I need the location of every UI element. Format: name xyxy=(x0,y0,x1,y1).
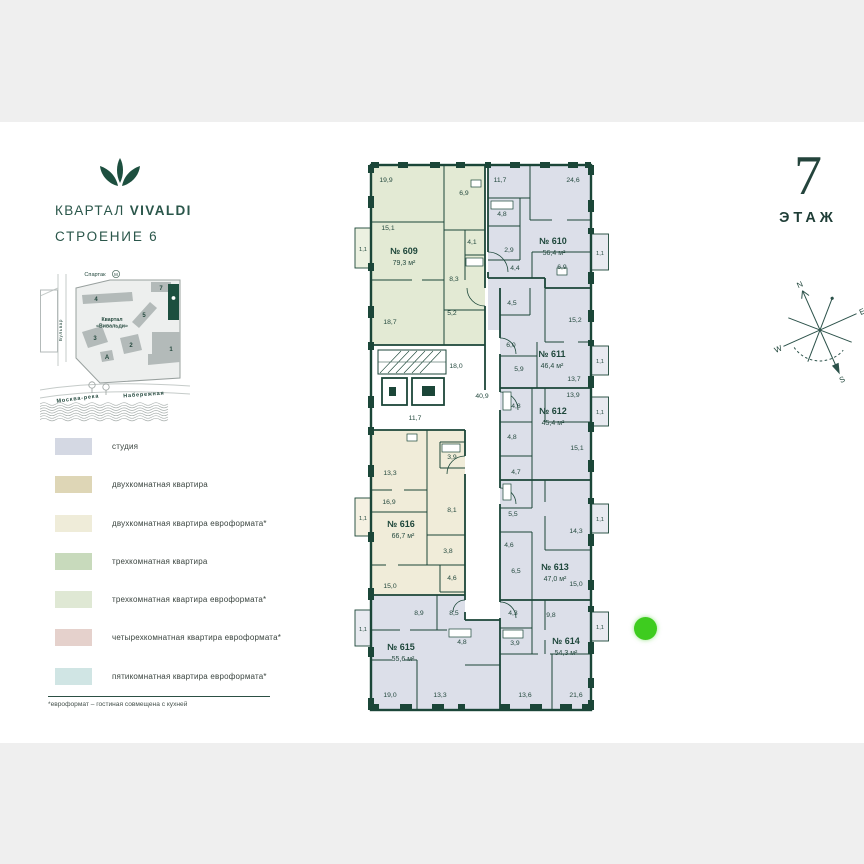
room-label: 4,7 xyxy=(511,469,521,476)
room-label: 4,4 xyxy=(510,265,520,272)
room-label: 13,3 xyxy=(383,470,396,477)
balcony-label: 1,1 xyxy=(596,410,604,416)
map-metro-label: Спартак xyxy=(84,272,106,278)
balcony-label: 1,1 xyxy=(359,516,367,522)
floor-label: ЭТАЖ xyxy=(768,210,848,226)
room-label: 6,0 xyxy=(506,342,516,349)
room-label: 8,3 xyxy=(449,276,459,283)
legend-item-4room-euro: четырехкомнатная квартира евроформата* xyxy=(55,629,305,646)
compass-e: E xyxy=(858,307,864,317)
balcony-label: 1,1 xyxy=(359,627,367,633)
floor-badge: 7 ЭТАЖ xyxy=(768,150,848,226)
room-label: 2,9 xyxy=(504,247,514,254)
map-label-a: А xyxy=(105,355,110,361)
metro-icon-letter: М xyxy=(114,272,118,277)
room-label: 6,9 xyxy=(459,190,469,197)
legend-divider xyxy=(48,696,270,697)
compass-n: N xyxy=(795,279,804,290)
room-label: 16,9 xyxy=(382,499,395,506)
legend-item-2room-euro: двухкомнатная квартира евроформата* xyxy=(55,515,305,532)
legend-swatch xyxy=(55,438,92,455)
map-embankment-label: Набережная xyxy=(123,390,165,400)
legend-label: двухкомнатная квартира xyxy=(112,480,208,489)
room-label: 13,6 xyxy=(518,692,531,699)
legend-swatch xyxy=(55,629,92,646)
apartment-number: № 616 xyxy=(387,519,415,529)
apartment-area: 66,7 м² xyxy=(392,533,415,540)
room-label: 24,6 xyxy=(566,177,579,184)
room-label: 3,8 xyxy=(443,548,453,555)
legend-label: четырехкомнатная квартира евроформата* xyxy=(112,633,281,642)
room-label: 19,9 xyxy=(379,177,392,184)
room-label: 5,9 xyxy=(514,366,524,373)
balcony-label: 1,1 xyxy=(596,517,604,523)
apartment-611[interactable] xyxy=(488,278,591,388)
compass-w: W xyxy=(773,343,784,354)
apartment-area: 55,6 м² xyxy=(392,656,415,663)
map-quarter-name-1: Квартал xyxy=(102,317,123,323)
building-title: СТРОЕНИЕ 6 xyxy=(55,229,158,244)
legend-label: двухкомнатная квартира евроформата* xyxy=(112,519,267,528)
room-label: 3,9 xyxy=(510,640,520,647)
apartment-area: 79,3 м² xyxy=(393,260,416,267)
room-label: 3,9 xyxy=(447,454,457,461)
map-building-6-flower-icon xyxy=(172,296,176,300)
apartment-area: 45,4 м² xyxy=(542,420,565,427)
room-label: 4,8 xyxy=(497,211,507,218)
legend-swatch xyxy=(55,515,92,532)
legend-label: студия xyxy=(112,442,138,451)
room-label: 9,8 xyxy=(546,612,556,619)
project-name: КВАРТАЛ xyxy=(55,203,125,218)
lobby-area-label: 11,7 xyxy=(409,415,422,422)
kitchen-icon xyxy=(407,434,417,441)
apartment-area: 56,4 м² xyxy=(543,250,566,257)
legend-footnote: *евроформат – гостиная совмещена с кухне… xyxy=(48,701,187,708)
room-label: 8,9 xyxy=(414,610,424,617)
apartment-number: № 612 xyxy=(539,406,567,416)
apartment-area: 46,4 м² xyxy=(541,363,564,370)
project-title: КВАРТАЛ VIVALDI xyxy=(55,203,192,218)
room-label: 6,5 xyxy=(511,568,521,575)
corridor-area-label: 40,9 xyxy=(475,393,488,400)
balcony-label: 1,1 xyxy=(596,251,604,257)
apartment-number: № 611 xyxy=(538,349,565,359)
apartment-number: № 613 xyxy=(541,562,569,572)
apartment-number: № 609 xyxy=(390,246,418,256)
south-arrowhead xyxy=(833,363,842,374)
legend-item-3room-euro: трехкомнатная квартира евроформата* xyxy=(55,591,305,608)
legend-item-3room: трехкомнатная квартира xyxy=(55,553,305,570)
compass-s: S xyxy=(838,375,847,385)
apartment-number: № 615 xyxy=(387,642,415,652)
room-label: 4,1 xyxy=(467,239,477,246)
balcony-label: 1,1 xyxy=(596,359,604,365)
legend-item-5room-euro: пятикомнатная квартира евроформата* xyxy=(55,668,305,685)
legend-label: трехкомнатная квартира xyxy=(112,557,208,566)
sun-icon xyxy=(830,296,834,300)
room-label: 18,7 xyxy=(383,319,396,326)
room-label: 5,5 xyxy=(508,511,518,518)
room-label: 15,2 xyxy=(568,317,581,324)
room-label: 13,3 xyxy=(433,692,446,699)
room-label: 11,7 xyxy=(494,177,507,184)
room-label: 21,6 xyxy=(569,692,582,699)
balcony-label: 1,1 xyxy=(359,247,367,253)
top-gray-band xyxy=(0,0,864,122)
legend-swatch xyxy=(55,591,92,608)
map-street-label: Бульвар xyxy=(58,319,64,341)
legend: студия двухкомнатная квартира двухкомнат… xyxy=(55,438,305,706)
elevator-2-icon xyxy=(422,386,435,396)
room-label: 4,8 xyxy=(507,434,517,441)
room-label: 13,9 xyxy=(566,392,579,399)
brand-name: VIVALDI xyxy=(130,203,192,218)
balcony-label: 1,1 xyxy=(596,625,604,631)
room-label: 13,7 xyxy=(567,376,580,383)
legend-item-2room: двухкомнатная квартира xyxy=(55,476,305,493)
kitchen-icon xyxy=(471,180,481,187)
floor-plan: 19,9 6,9 15,1 4,1 8,3 5,2 18,7 № 609 79,… xyxy=(352,160,612,712)
room-label: 4,8 xyxy=(457,639,467,646)
room-label: 15,1 xyxy=(570,445,583,452)
room-label: 5,2 xyxy=(447,310,457,317)
floor-number: 7 xyxy=(768,150,848,203)
room-label: 19,0 xyxy=(383,692,396,699)
site-map: 4 7 5 3 2 А 1 Квартал «Вивальди» Спартак… xyxy=(40,266,190,424)
room-label: 15,1 xyxy=(381,225,394,232)
room-label: 8,5 xyxy=(449,610,459,617)
room-label: 4,5 xyxy=(507,300,517,307)
room-label: 6,9 xyxy=(557,264,567,271)
compass-rose: N E S W xyxy=(745,278,864,390)
room-label: 14,3 xyxy=(569,528,582,535)
apartment-area: 47,0 м² xyxy=(544,576,567,583)
room-label: 4,6 xyxy=(504,542,514,549)
legend-item-studio: студия xyxy=(55,438,305,455)
map-quarter-name-2: «Вивальди» xyxy=(96,324,128,330)
map-neighbor-building xyxy=(41,290,58,352)
room-label: 15,0 xyxy=(383,583,396,590)
apartment-area: 54,3 м² xyxy=(555,650,578,657)
bottom-gray-band xyxy=(0,743,864,864)
room-label: 4,6 xyxy=(447,575,457,582)
map-river-waves xyxy=(40,403,168,421)
legend-swatch xyxy=(55,476,92,493)
selected-apartment-marker[interactable] xyxy=(634,617,657,640)
elevator-1-icon xyxy=(389,387,396,396)
legend-label: пятикомнатная квартира евроформата* xyxy=(112,672,267,681)
legend-swatch xyxy=(55,553,92,570)
apartment-number: № 614 xyxy=(552,636,580,646)
stairs-area-label: 18,0 xyxy=(449,363,462,370)
legend-label: трехкомнатная квартира евроформата* xyxy=(112,595,266,604)
map-building-6-highlighted[interactable] xyxy=(168,284,179,320)
brand-logo-flower-icon xyxy=(97,155,143,197)
room-label: 8,1 xyxy=(447,507,457,514)
apartment-number: № 610 xyxy=(539,236,567,246)
room-label: 15,0 xyxy=(569,581,582,588)
room-label: 4,8 xyxy=(511,403,521,410)
legend-swatch xyxy=(55,668,92,685)
map-building-1[interactable] xyxy=(148,332,180,365)
room-label: 4,3 xyxy=(508,610,518,617)
